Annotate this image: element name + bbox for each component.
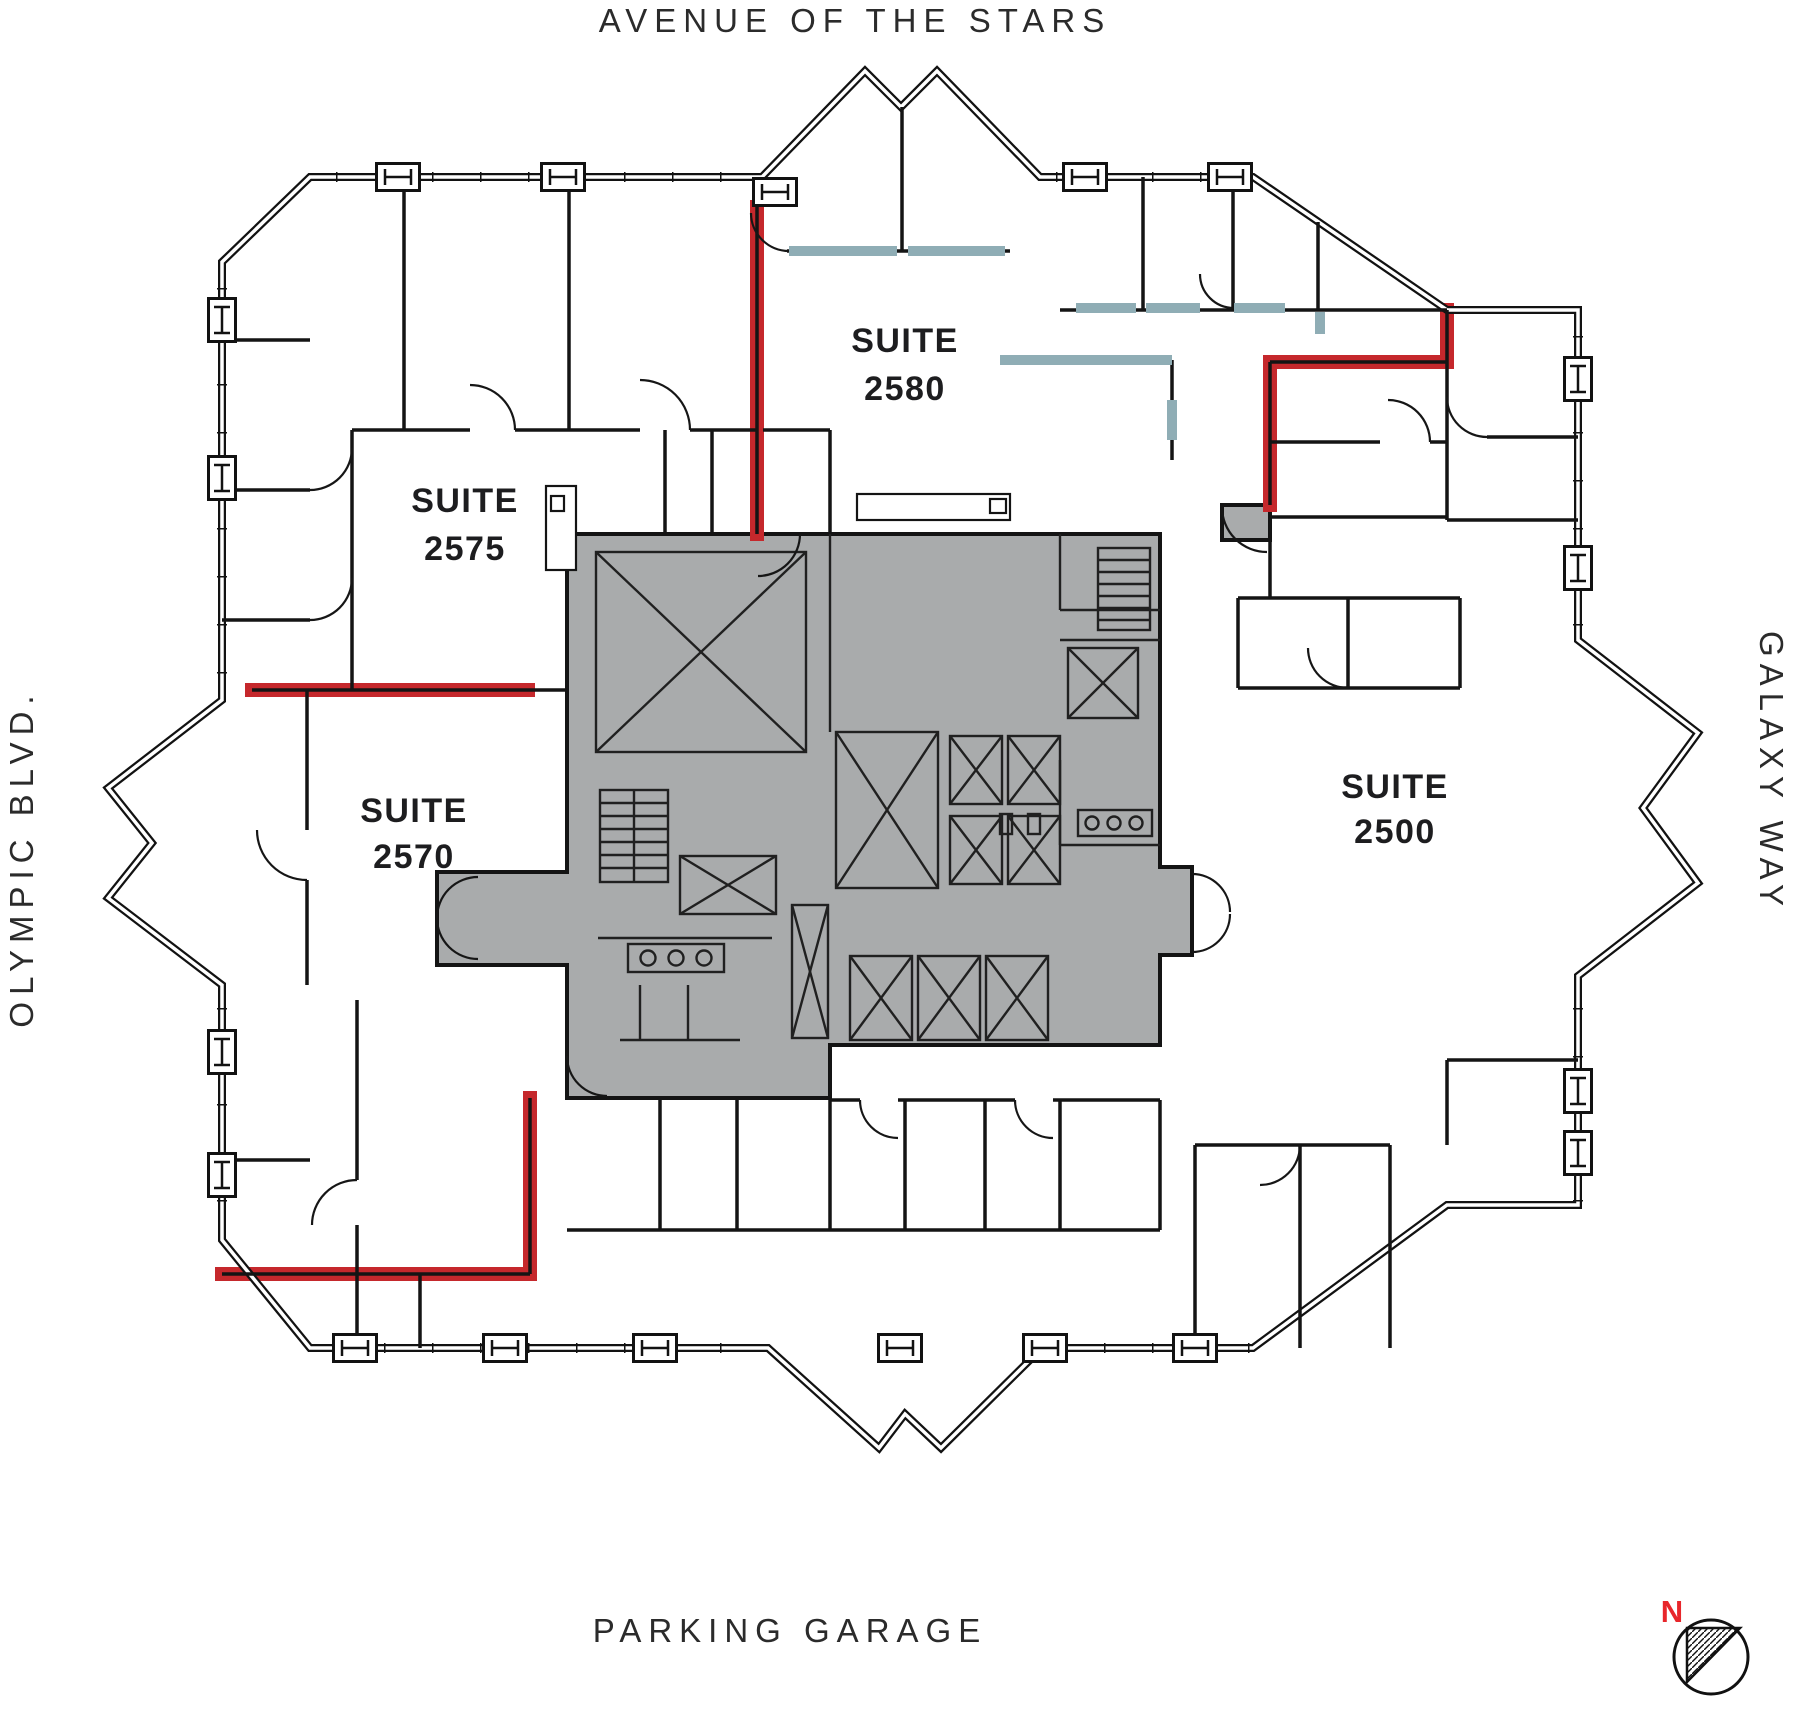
building-core [437,505,1270,1098]
suite-2580-label: SUITE 2580 [851,322,959,408]
suite-2570-label: SUITE 2570 [360,792,468,876]
street-label-bottom: PARKING GARAGE [593,1612,987,1649]
street-label-right: GALAXY WAY [1753,631,1790,913]
suite-2575-number: 2575 [424,530,506,568]
street-label-top: AVENUE OF THE STARS [599,2,1112,39]
floor-plan-page: { "streets": { "top": "AVENUE OF THE STA… [0,0,1800,1711]
suite-2500-label: SUITE 2500 [1341,768,1449,851]
desk-equipment [990,499,1006,513]
suite-2500-name: SUITE [1341,768,1449,806]
suite-2575-name: SUITE [411,482,519,520]
red-demising-wall-2500 [1270,310,1447,505]
suite-2570-name: SUITE [360,792,468,830]
compass-north-label: N [1661,1594,1683,1629]
suite-2575-label: SUITE 2575 [411,482,519,568]
closet-fixture [551,496,564,511]
suite-2580-name: SUITE [851,322,959,360]
reception-desk [857,494,1010,520]
compass: N [1661,1594,1748,1694]
suite-2500-number: 2500 [1354,813,1436,851]
core-vestibule-2500 [1222,505,1270,540]
floor-plan-svg: AVENUE OF THE STARS PARKING GARAGE OLYMP… [0,0,1800,1711]
red-demising-wall-2570-south [222,1098,530,1274]
street-label-left: OLYMPIC BLVD. [3,688,40,1027]
suite-2580-number: 2580 [864,370,946,408]
suite-2570-number: 2570 [373,838,455,876]
